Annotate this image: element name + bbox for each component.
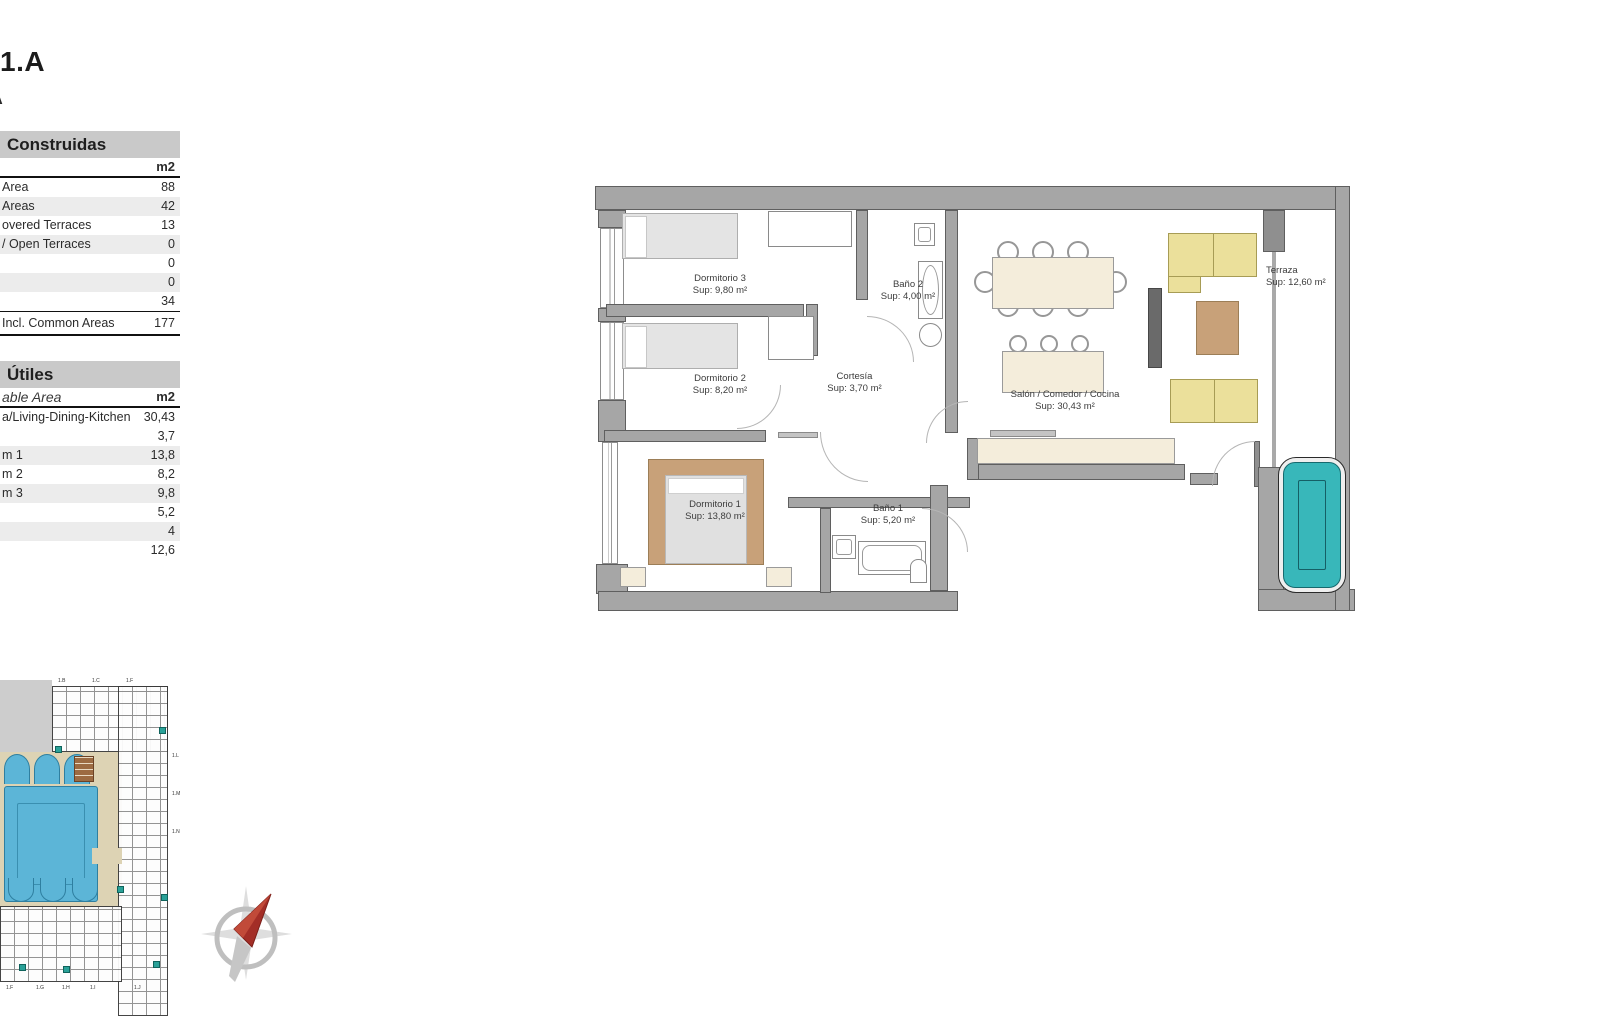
- usable-areas-header: Útiles: [7, 365, 53, 384]
- room-label-dormitorio-2: Dormitorio 2Sup: 8,20 m²: [645, 373, 795, 398]
- site-unit-label: 1.I: [90, 986, 96, 991]
- nightstand: [766, 567, 792, 587]
- pillow: [625, 216, 647, 258]
- door-arc: [820, 432, 868, 482]
- table-row: Areas42: [0, 197, 180, 216]
- site-adjacent-block: [0, 680, 52, 754]
- window: [602, 442, 618, 564]
- table-row: / Open Terraces0: [0, 235, 180, 254]
- usable-areas-table: Útiles able Area m2 a/Living-Dining-Kitc…: [0, 361, 180, 560]
- table-row: 0: [0, 273, 180, 292]
- plunge-pool: [1278, 457, 1346, 593]
- toilet: [910, 559, 927, 583]
- site-unit-label: 1.H: [62, 986, 70, 991]
- site-unit-label: 1.L: [172, 754, 179, 759]
- sofa: [1170, 379, 1258, 423]
- bed-single: [622, 213, 738, 259]
- site-unit-label: 1.F: [126, 679, 133, 684]
- built-areas-unit-row: m2: [0, 158, 180, 178]
- sofa-cushion-line: [1214, 380, 1215, 422]
- usable-areas-subheader: able Area: [2, 388, 61, 406]
- table-row: 5,2: [0, 503, 180, 522]
- wall-segment: [820, 508, 831, 593]
- unit-label: m2: [156, 158, 175, 176]
- washing-machine-drum: [918, 227, 931, 242]
- coffee-table: [1196, 301, 1239, 355]
- unit-highlight: [19, 964, 26, 971]
- page-subtitle-fragment: A: [0, 84, 9, 108]
- unit-highlight: [117, 886, 124, 893]
- floor-plan: Dormitorio 3Sup: 9,80 m² Baño 2Sup: 4,00…: [590, 183, 1360, 615]
- door-arc: [926, 401, 968, 443]
- washing-machine-drum: [836, 539, 852, 555]
- site-units-right: [118, 686, 168, 1016]
- unit-label: m2: [156, 388, 175, 406]
- plunge-pool-step: [1298, 480, 1326, 570]
- table-row: m 28,2: [0, 465, 180, 484]
- unit-highlight: [63, 966, 70, 973]
- site-pool-curve: [4, 754, 30, 784]
- sofa: [1168, 233, 1257, 277]
- page: 1.A A Construidas m2 Area88 Areas42 over…: [0, 0, 1600, 1024]
- table-row: 34: [0, 292, 180, 311]
- washing-machine: [832, 535, 856, 559]
- site-main-pool-inner: [17, 803, 85, 885]
- table-row: 4: [0, 522, 180, 541]
- table-row: 0: [0, 254, 180, 273]
- toilet: [919, 323, 942, 347]
- room-label-salon: Salón / Comedor / CocinaSup: 30,43 m²: [965, 389, 1165, 414]
- site-unit-label: 1.N: [172, 830, 180, 835]
- wardrobe: [768, 211, 852, 247]
- unit-highlight: [159, 727, 166, 734]
- table-row: overed Terraces13: [0, 216, 180, 235]
- nightstand: [620, 567, 646, 587]
- site-deck-path: [92, 848, 122, 864]
- room-label-dormitorio-1: Dormitorio 1Sup: 13,80 m²: [640, 499, 790, 524]
- wardrobe: [768, 316, 814, 360]
- dining-table: [992, 257, 1114, 309]
- usable-areas-header-band: Útiles: [0, 361, 180, 388]
- door-arc: [1212, 441, 1255, 486]
- table-row: m 39,8: [0, 484, 180, 503]
- usable-areas-rows: a/Living-Dining-Kitchen30,43 3,7 m 113,8…: [0, 408, 180, 560]
- unit-highlight: [55, 746, 62, 753]
- site-pool-curve: [72, 878, 98, 902]
- table-row: m 113,8: [0, 446, 180, 465]
- sofa-cushion-line: [1213, 234, 1214, 276]
- room-label-bano-2: Baño 2Sup: 4,00 m²: [863, 279, 953, 304]
- room-label-bano-1: Baño 1Sup: 5,20 m²: [838, 503, 938, 528]
- room-label-dormitorio-3: Dormitorio 3Sup: 9,80 m²: [645, 273, 795, 298]
- wall-segment: [595, 186, 1350, 210]
- wall-segment: [967, 464, 1185, 480]
- unit-highlight: [161, 894, 168, 901]
- site-pool-curve: [8, 878, 34, 902]
- table-row: 3,7: [0, 427, 180, 446]
- built-areas-header-band: Construidas: [0, 131, 180, 158]
- pillow: [625, 326, 647, 368]
- room-label-terraza: TerrazaSup: 12,60 m²: [1266, 265, 1351, 290]
- site-unit-label: 1.J: [134, 986, 141, 991]
- site-plan: 1.B 1.C 1.F 1.F 1.G 1.H 1.I 1.J 1.L 1.M …: [0, 650, 192, 1022]
- tv-unit: [1148, 288, 1162, 368]
- page-title: 1.A: [0, 46, 45, 78]
- window: [600, 322, 624, 400]
- site-unit-label: 1.M: [172, 792, 180, 797]
- kitchen-counter: [977, 438, 1175, 464]
- wall-segment: [604, 430, 766, 442]
- room-label-cortesia: CortesíaSup: 3,70 m²: [802, 371, 907, 396]
- table-row: 12,6: [0, 541, 180, 560]
- built-areas-rows: Area88 Areas42 overed Terraces13 / Open …: [0, 178, 180, 311]
- site-unit-label: 1.C: [92, 679, 100, 684]
- site-pool-curve: [34, 754, 60, 784]
- plunge-pool-water: [1283, 462, 1341, 588]
- table-row: a/Living-Dining-Kitchen30,43: [0, 408, 180, 427]
- washing-machine: [914, 223, 935, 246]
- site-unit-label: 1.G: [36, 986, 44, 991]
- wall-segment: [945, 210, 958, 433]
- usable-areas-unit-row: able Area m2: [0, 388, 180, 408]
- pillar: [1263, 210, 1285, 252]
- unit-highlight: [153, 961, 160, 968]
- site-pool-steps: [74, 756, 94, 782]
- built-areas-total-row: Incl. Common Areas 177: [0, 311, 180, 336]
- door-arc: [867, 316, 914, 362]
- built-areas-table: Construidas m2 Area88 Areas42 overed Ter…: [0, 131, 180, 336]
- table-row: Area88: [0, 178, 180, 197]
- kitchen-island: [1002, 351, 1104, 393]
- compass-icon: [193, 880, 298, 990]
- built-areas-header: Construidas: [7, 135, 106, 154]
- bed-single: [622, 323, 738, 369]
- pillow: [668, 478, 744, 494]
- site-pool-curve: [40, 878, 66, 902]
- sliding-door: [778, 432, 818, 438]
- window: [600, 228, 624, 308]
- site-unit-label: 1.F: [6, 986, 13, 991]
- site-unit-label: 1.B: [58, 679, 66, 684]
- sliding-door: [990, 430, 1056, 437]
- wall-segment: [598, 591, 958, 611]
